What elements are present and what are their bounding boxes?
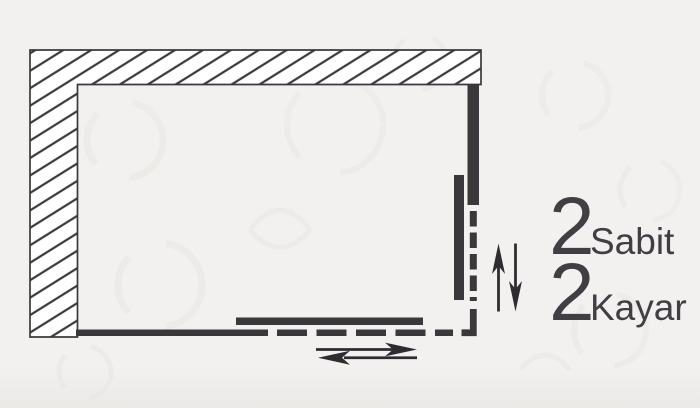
- left-arrow: [318, 351, 417, 365]
- horizontal-slide-direction-arrows: [316, 343, 417, 365]
- right-arrow: [316, 343, 417, 357]
- bottom-sliding-panel: [236, 318, 423, 326]
- vertical-slide-direction-arrows: [492, 244, 522, 312]
- hatched-wall: [30, 50, 481, 337]
- diagram-canvas: 2 Sabit 2 Kayar: [0, 0, 700, 408]
- right-sliding-panel: [454, 175, 464, 300]
- corner-dashed-joint: [462, 309, 474, 333]
- right-fixed-panel: [468, 85, 480, 205]
- sliding-text-label: Kayar: [590, 287, 687, 328]
- down-arrow: [509, 244, 522, 312]
- up-arrow: [492, 244, 505, 312]
- bottom-fixed-panel: [76, 330, 268, 337]
- sliding-count-label: 2: [549, 247, 594, 338]
- fixed-text-label: Sabit: [590, 221, 675, 262]
- shower-enclosure-plan-svg: 2 Sabit 2 Kayar: [0, 0, 700, 408]
- wall-structure: [30, 50, 481, 337]
- panel-count-labels: 2 Sabit 2 Kayar: [549, 181, 687, 338]
